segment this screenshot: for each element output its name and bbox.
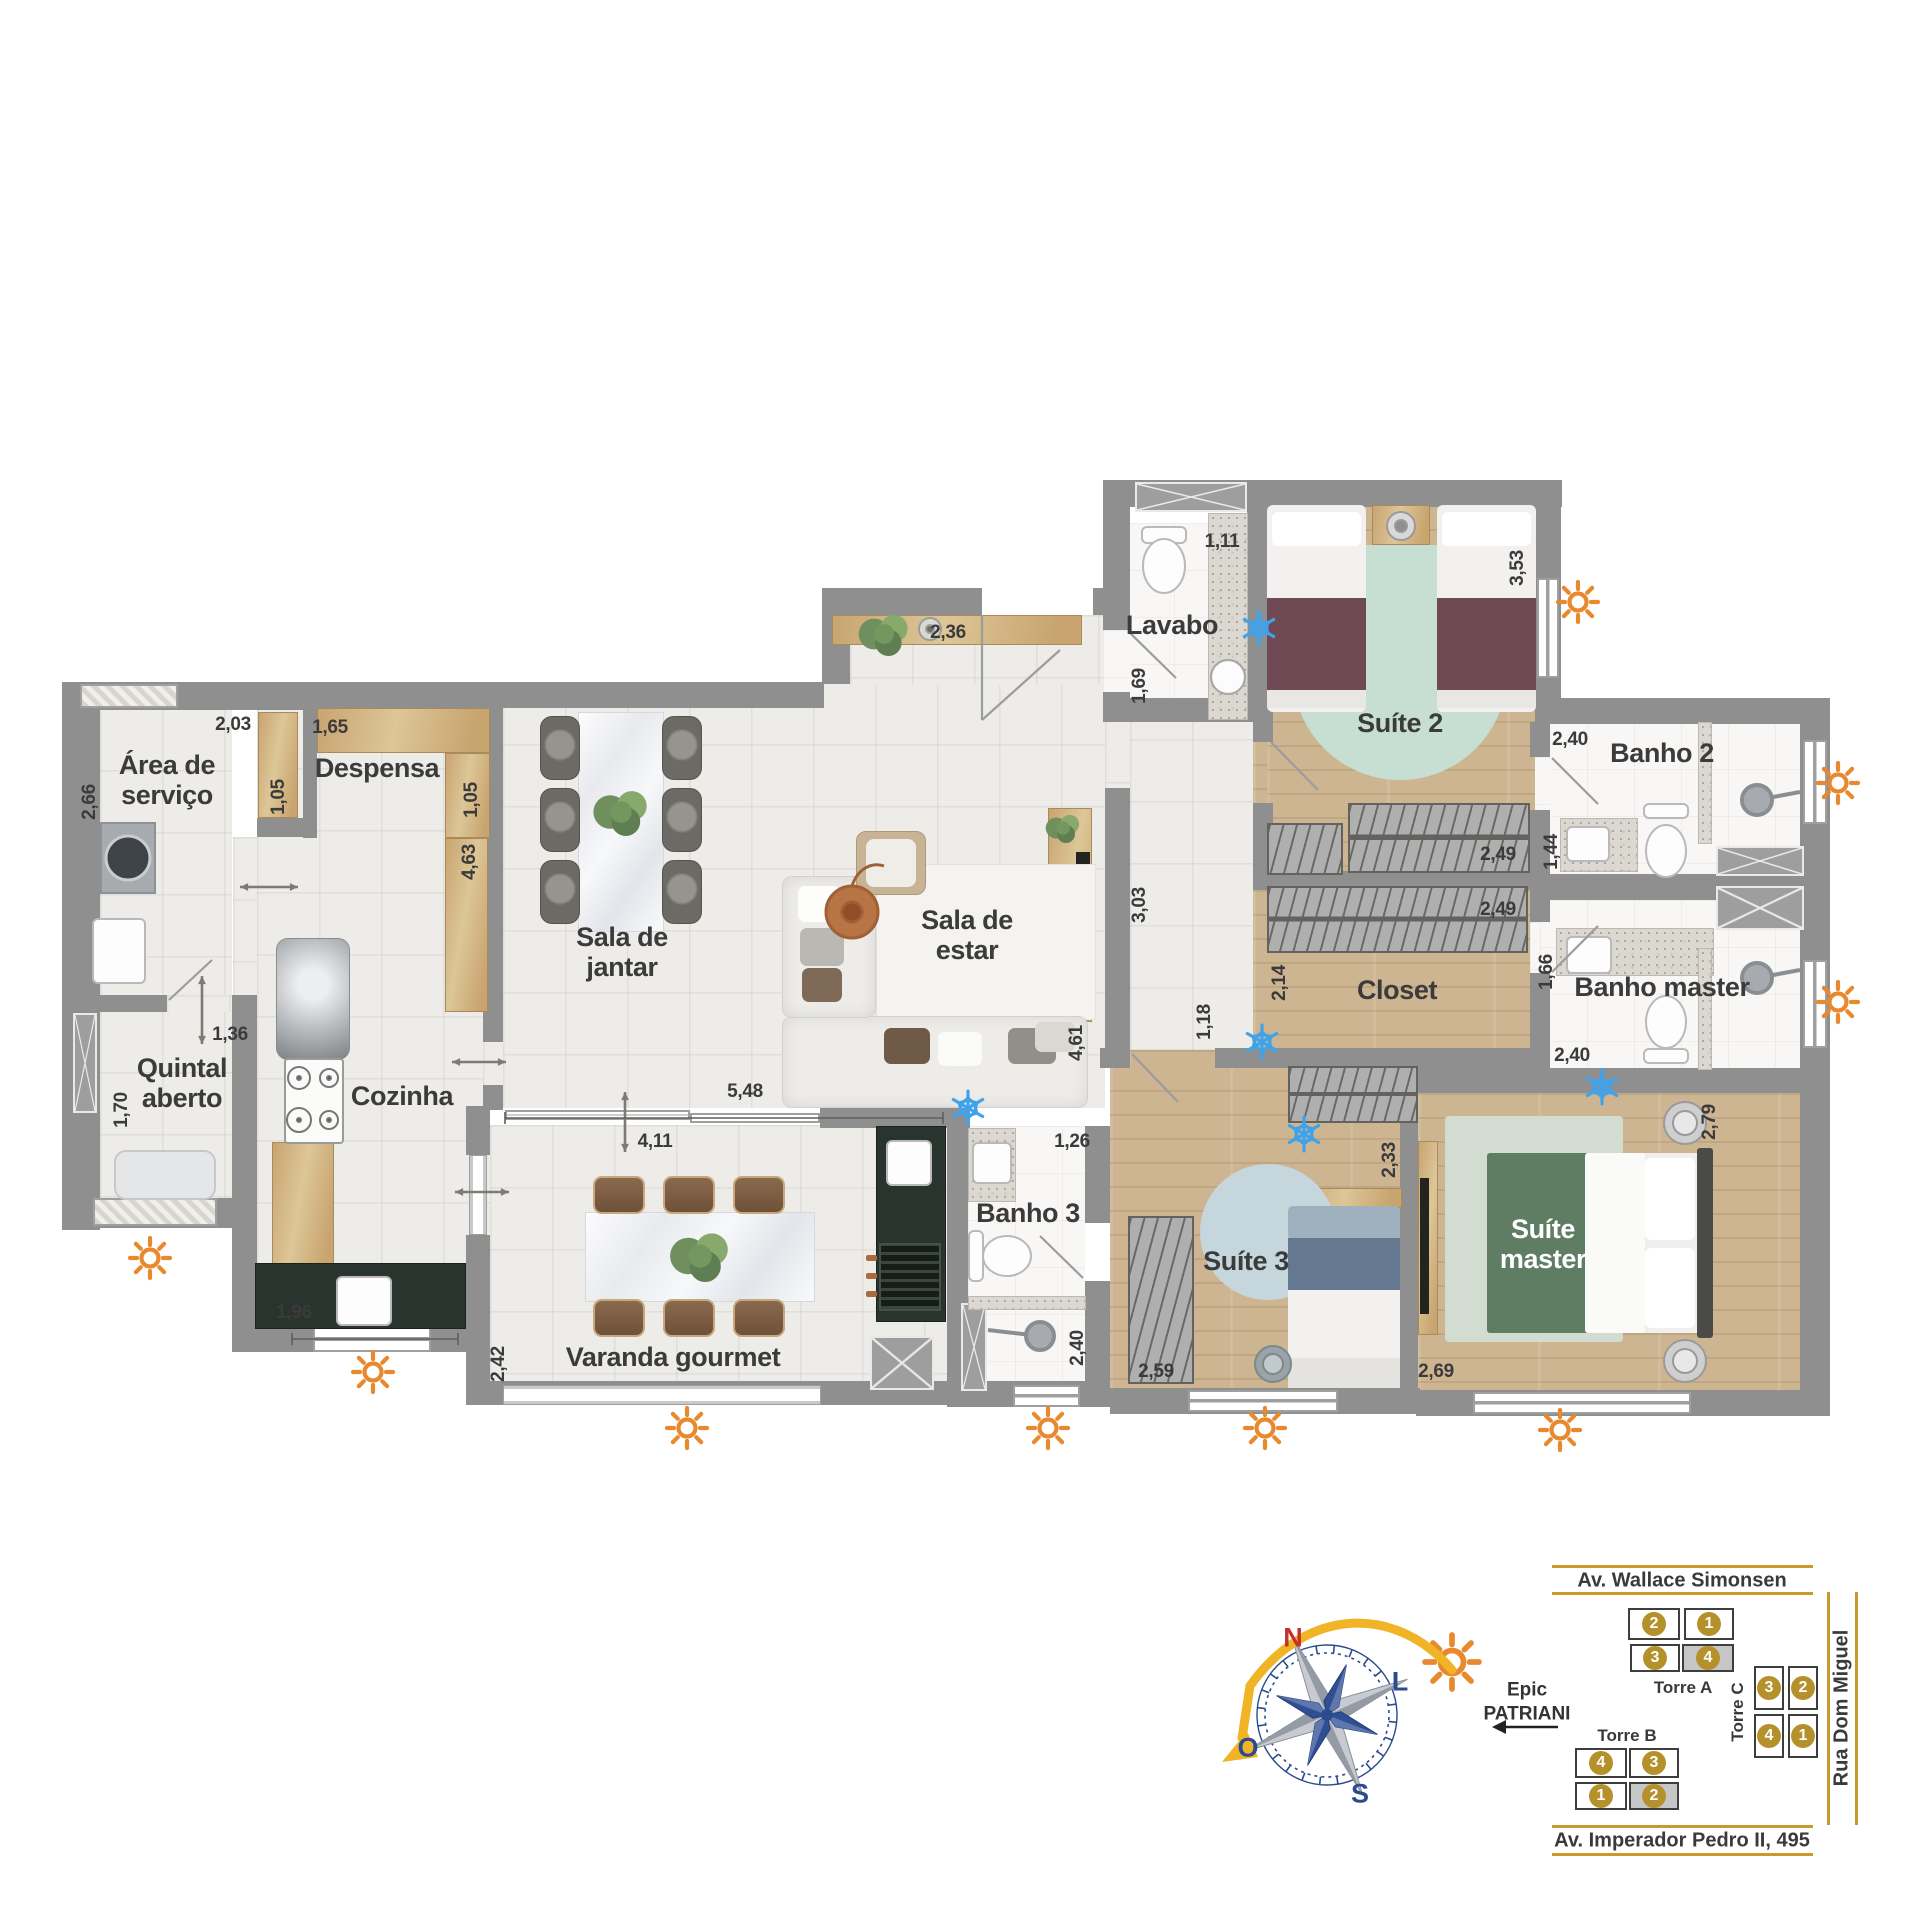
unit-number: 3 [1642,1751,1666,1775]
unit-number: 2 [1642,1612,1666,1636]
tower-label: Torre A [1654,1678,1713,1698]
street-line [1552,1565,1813,1568]
unit-number: 4 [1589,1751,1613,1775]
unit-number: 3 [1757,1676,1781,1700]
unit-number: 4 [1757,1724,1781,1748]
street-line [1855,1592,1858,1825]
unit-number: 1 [1697,1612,1721,1636]
street-line [1552,1853,1813,1856]
street-line [1552,1825,1813,1828]
floor-plan-page: Área de serviçoDespensaSala de jantarSal… [0,0,1920,1920]
tower-label: Torre C [1728,1682,1748,1741]
unit-number: 1 [1791,1724,1815,1748]
unit-number: 2 [1791,1676,1815,1700]
unit-number: 1 [1589,1784,1613,1808]
street-label-top: Av. Wallace Simonsen [1577,1570,1786,1593]
street-label-bottom: Av. Imperador Pedro II, 495 [1554,1830,1810,1853]
street-label-right: Rua Dom Miguel [1831,1630,1854,1787]
unit-number: 3 [1643,1646,1667,1670]
tower-label: Torre B [1597,1726,1656,1746]
site-map: Av. Wallace SimonsenRua Dom MiguelAv. Im… [0,0,1920,1920]
unit-number: 2 [1642,1784,1666,1808]
unit-number: 4 [1696,1646,1720,1670]
